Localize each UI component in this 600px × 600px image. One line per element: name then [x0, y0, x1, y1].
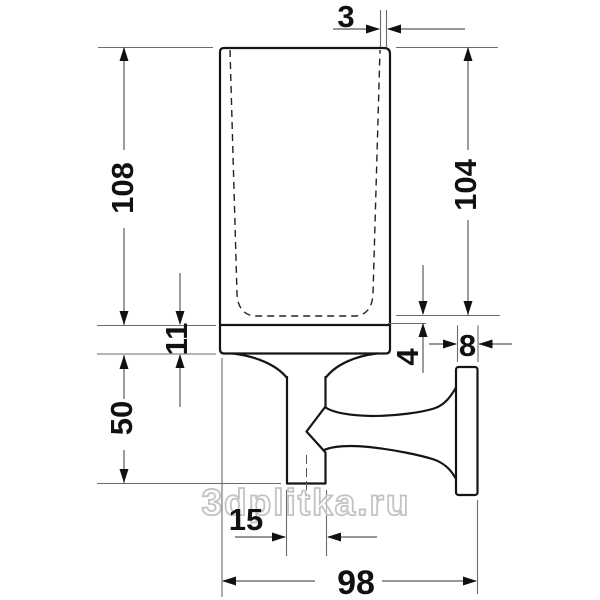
dim-label-band-height: 11 [159, 323, 194, 356]
dim-label-overall-depth: 98 [337, 564, 375, 600]
glass-tumbler [220, 48, 390, 354]
dim-label-inner-height: 104 [448, 158, 483, 210]
dim-label-rim-thickness: 3 [337, 0, 354, 34]
wall-plate [456, 367, 478, 495]
dim-label-plate-thickness: 8 [459, 328, 476, 363]
tumbler-holder-drawing: 3dplitka.ru 3 108 104 11 50 4 8 15 98 [0, 0, 600, 600]
dim-label-overall-height: 108 [105, 162, 140, 214]
dim-label-bracket-height: 50 [104, 401, 139, 435]
technical-drawing-page: 3dplitka.ru 3 108 104 11 50 4 8 15 98 [0, 0, 600, 600]
dim-label-base-thickness: 4 [390, 348, 425, 366]
dim-label-post-width: 15 [229, 502, 263, 537]
glass-body [220, 48, 390, 354]
